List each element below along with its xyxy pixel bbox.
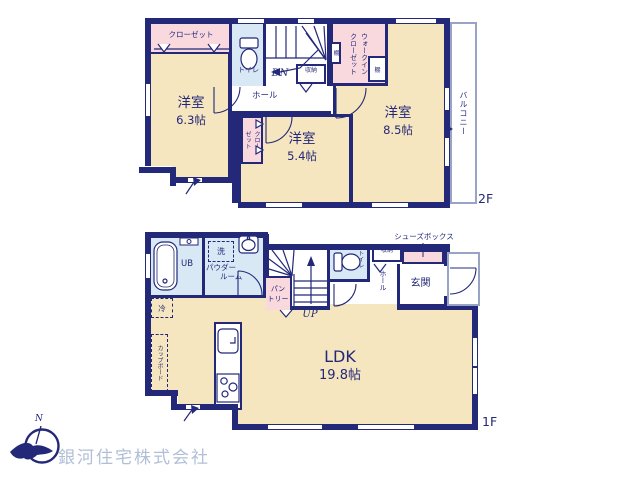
- entrance-porch: [447, 252, 480, 306]
- powder-label-line2: ルーム: [220, 273, 262, 282]
- room-63-label: 洋室 6.3帖: [154, 96, 228, 127]
- toilet-1f-label: トイレ: [356, 250, 363, 268]
- fridge-label: 冷: [158, 303, 166, 314]
- window-2f-toilet-top: [238, 18, 264, 24]
- window-2f-room63-left: [145, 84, 151, 116]
- ldk-size: 19.8帖: [303, 369, 377, 384]
- pantry-label-line2: トリー: [268, 294, 289, 304]
- floor1-notch-wall-4: [232, 404, 238, 430]
- pantry: パン トリー: [266, 276, 292, 310]
- floor1-outline: 洗 パン トリー 冷 カップボード: [145, 232, 478, 430]
- room-54-label: 洋室 5.4帖: [258, 132, 346, 163]
- hall-2f: [232, 86, 331, 114]
- wic-shelf-left: 棚: [330, 42, 341, 64]
- bird-icon: [10, 443, 53, 460]
- floorplan-page: ウォークイン クローゼット 棚 棚 クロー ゼット バルコニー: [0, 0, 640, 480]
- window-2f-room85-top: [396, 18, 436, 24]
- ldk-name: LDK: [303, 348, 377, 366]
- wic-shelf-right: 棚: [368, 56, 387, 82]
- shoe-box: [402, 250, 444, 264]
- window-1f-ldk-right-2: [472, 368, 478, 394]
- storage-1f-label: 収納: [373, 248, 401, 255]
- powder-label: パウダー ルーム: [206, 264, 262, 281]
- fridge-box: 冷: [151, 298, 173, 318]
- room-54-name: 洋室: [258, 132, 346, 148]
- window-2f-room54-bottom: [266, 202, 302, 208]
- company-name: 銀河住宅株式会社: [58, 449, 210, 469]
- kitchen-door-gap: [186, 404, 200, 410]
- shoebox-label: シューズボックス: [388, 233, 460, 242]
- room-63-name: 洋室: [154, 96, 228, 112]
- kitchen-counter: [214, 322, 242, 410]
- ldk-label: LDK 19.8帖: [303, 348, 377, 384]
- floor1-notch-wall-3: [171, 404, 238, 410]
- window-2f-balcony-1: [444, 88, 450, 110]
- genkan-label: 玄関: [399, 278, 442, 290]
- room-85-label: 洋室 8.5帖: [352, 106, 444, 137]
- room-85-name: 洋室: [352, 106, 444, 122]
- closet-54-label-line2: ゼット: [243, 131, 252, 149]
- floor2-notch-cover-2: [172, 189, 238, 216]
- room-85-upper: [388, 24, 444, 86]
- window-1f-ub-left: [145, 254, 151, 278]
- balcony-label: バルコニー: [458, 91, 469, 136]
- window-1f-ldk-right-1: [472, 338, 478, 366]
- window-2f-room63-bottom-gap: [188, 177, 202, 183]
- washer-box: 洗: [208, 241, 234, 262]
- room-54-size: 5.4帖: [258, 150, 346, 163]
- floor2-label: 2F: [478, 192, 493, 206]
- floor2-notch-wall-b: [170, 167, 176, 186]
- washer-label: 洗: [217, 246, 225, 257]
- bath-ub: [151, 238, 205, 298]
- toilet-2f-label: トイレ: [233, 66, 264, 74]
- pantry-label-line1: パン: [271, 284, 285, 294]
- wic-shelf-right-label: 棚: [374, 65, 380, 74]
- window-1f-ldk-bottom-1: [268, 424, 322, 430]
- room-63-size: 6.3帖: [154, 114, 228, 127]
- window-2f-stairs-top: [298, 18, 314, 24]
- walkin-closet-label-line2: クローゼット: [349, 33, 359, 75]
- closet-63-label: クローゼット: [152, 31, 230, 40]
- cupboard-box: カップボード: [151, 334, 168, 392]
- floor1-top-step-wall: [263, 234, 269, 248]
- company-logo-icon: [10, 426, 59, 463]
- stairs-up-label: UP: [295, 309, 325, 321]
- hall-2f-label: ホール: [252, 92, 278, 102]
- ub-label: UB: [181, 260, 193, 270]
- window-2f-room85-bottom: [372, 202, 408, 208]
- floor2-partition-wall: [232, 114, 241, 203]
- balcony: バルコニー: [450, 22, 477, 204]
- storage-2f-label: 収納: [297, 68, 325, 75]
- window-2f-balcony-2: [444, 138, 450, 166]
- floor2-notch-cover-1: [139, 166, 172, 216]
- floor1-label: 1F: [482, 415, 497, 429]
- window-1f-ldk-bottom-2: [358, 424, 414, 430]
- stairs-down-label: DN: [266, 68, 294, 80]
- compass-n-label: N: [35, 414, 43, 424]
- cupboard-label: カップボード: [155, 345, 164, 381]
- hall-1f-label: ホール: [379, 270, 387, 291]
- room-85-size: 8.5帖: [352, 124, 444, 137]
- floor1-notch-cover-2: [178, 410, 236, 436]
- wic-shelf-left-label: 棚: [332, 50, 340, 56]
